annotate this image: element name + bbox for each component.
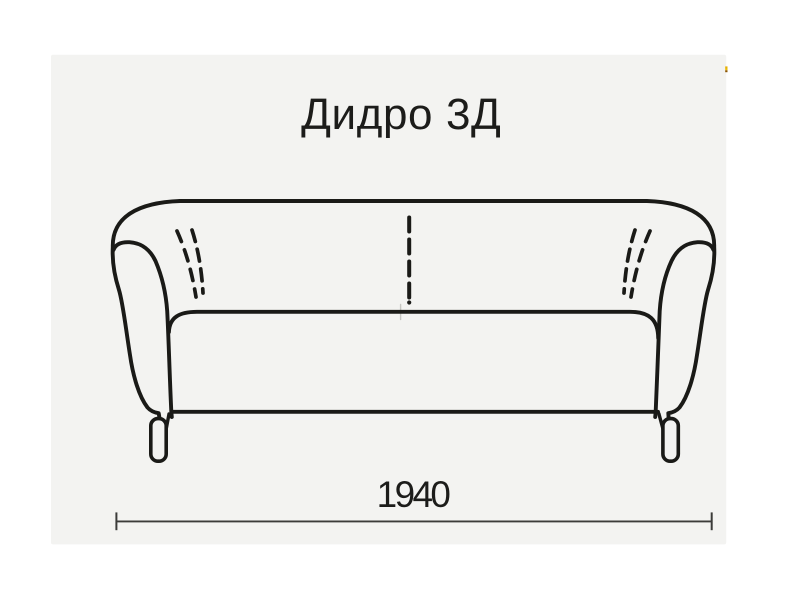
svg-text:1940: 1940: [377, 474, 451, 515]
svg-text:Дидро 3Д: Дидро 3Д: [301, 90, 501, 139]
